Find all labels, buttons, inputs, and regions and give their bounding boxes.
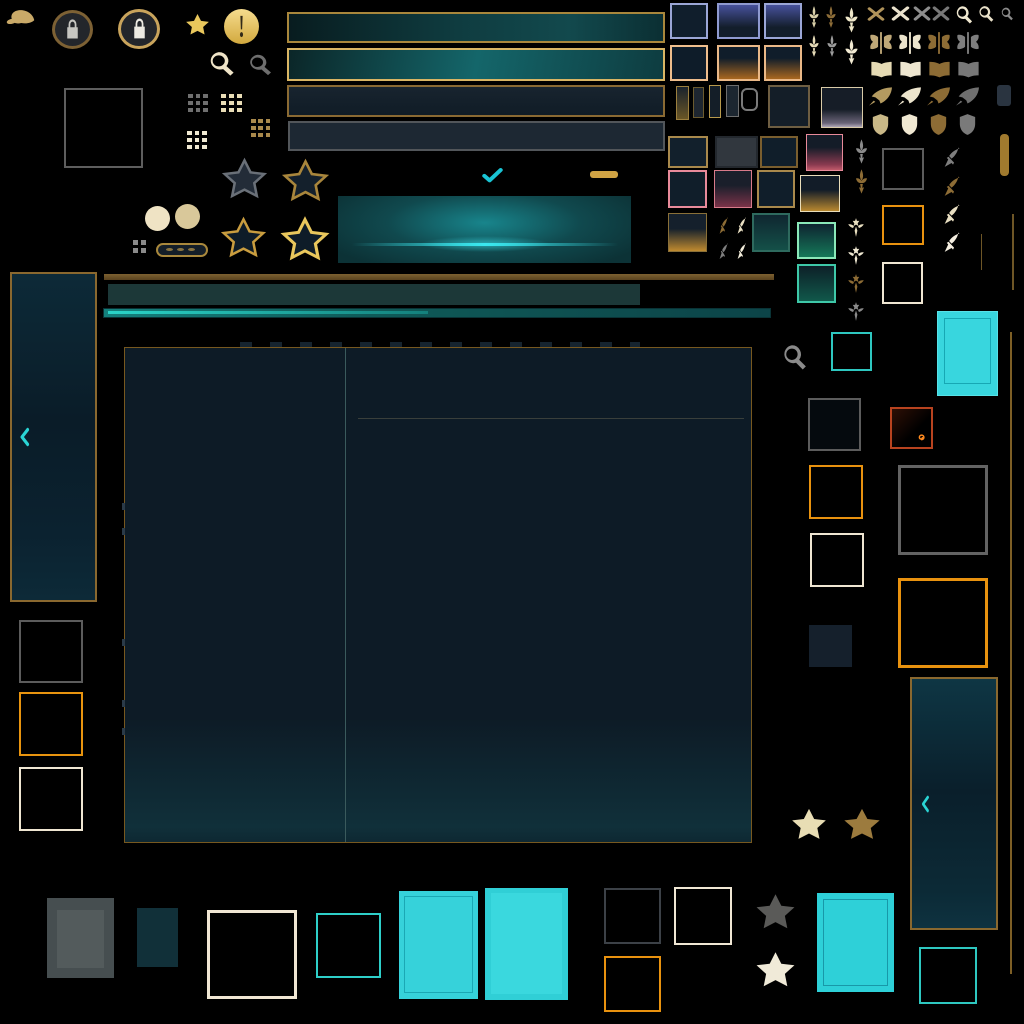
dot <box>203 101 208 105</box>
star-icon-outline-bright[interactable] <box>280 216 330 264</box>
close-icon-cream[interactable] <box>890 5 911 22</box>
dagger-icon-gray <box>940 146 965 173</box>
dot <box>229 94 234 98</box>
shield-icon-brown <box>927 112 950 137</box>
tile-cyan-filled-inner <box>944 318 991 384</box>
dot <box>251 119 256 123</box>
book-icon-brown <box>926 59 953 81</box>
book-icon-cream-a <box>868 59 895 81</box>
crest-icon-gray-col <box>852 137 871 166</box>
tile-frame-gold-b[interactable] <box>757 170 795 208</box>
slot-frame-lavender-c[interactable] <box>764 3 802 39</box>
frame-orange-small[interactable] <box>882 205 924 245</box>
dot <box>202 145 207 149</box>
slot-frame-fade-purple[interactable] <box>821 87 863 128</box>
dot <box>188 101 193 105</box>
dash-gold <box>590 171 618 178</box>
main-panel-rule <box>358 418 744 419</box>
check-icon[interactable] <box>481 165 504 185</box>
dot <box>187 131 192 135</box>
crest-icon-cream-large <box>841 5 862 35</box>
glow-button-streak <box>352 243 618 246</box>
circle-dot-cream[interactable] <box>145 206 170 231</box>
search-icon-cream-a[interactable] <box>953 4 975 26</box>
tile-frame-green[interactable] <box>797 264 836 303</box>
book-icon-gray <box>955 59 982 81</box>
sprite-atlas-canvas <box>0 0 1024 1024</box>
rule-brown <box>104 274 774 280</box>
frame-cyan-bottom-a[interactable] <box>316 913 381 978</box>
slot-rounded-frame[interactable] <box>741 88 758 111</box>
magnifier-icon-gray-large[interactable] <box>245 52 275 78</box>
frame-orange-mid[interactable] <box>809 465 863 519</box>
tile-gray-double-inner <box>57 910 104 968</box>
frame-cream-bottom-a[interactable] <box>207 910 297 999</box>
slot-narrow-gray-d[interactable] <box>726 85 739 117</box>
shield-icon-gray <box>956 112 979 137</box>
slot-narrow-gold-a[interactable] <box>676 86 689 120</box>
slider-pill-dots <box>166 248 199 253</box>
magnifier-icon-cream-large[interactable] <box>205 49 238 79</box>
frame-gray-small[interactable] <box>882 148 924 190</box>
button-bar-navy-gray[interactable] <box>288 121 665 151</box>
dot <box>258 126 263 130</box>
flame-swirl-icon <box>910 428 928 446</box>
bar-teal-highlight <box>108 311 428 314</box>
dagger-icon-brown-small <box>717 216 731 239</box>
dot <box>166 248 173 251</box>
panel-cyan-a-inner <box>404 896 473 993</box>
slot-frame-peach-c[interactable] <box>764 45 802 81</box>
dot <box>221 108 226 112</box>
shield-icon-tan <box>869 112 892 137</box>
dot <box>196 94 201 98</box>
frame-orange-bottom[interactable] <box>604 956 661 1012</box>
frame-orange-left[interactable] <box>19 692 83 756</box>
square-frame-gray-topleft[interactable] <box>64 88 143 168</box>
panel-notch-b <box>122 528 125 535</box>
crest-icon-cream <box>806 4 822 30</box>
circle-dot-tan[interactable] <box>175 204 200 229</box>
button-bar-teal-gold[interactable] <box>287 12 665 43</box>
grid-dots-gold[interactable] <box>251 119 273 140</box>
bow-icon-tan <box>866 85 895 108</box>
tile-navy-flat <box>809 625 852 667</box>
dot <box>266 126 271 130</box>
slot-pill-navy <box>997 85 1011 106</box>
tile-gold-gradient-b[interactable] <box>668 213 707 252</box>
dot <box>177 248 184 251</box>
slot-frame-peach-b[interactable] <box>717 45 760 81</box>
dagger-icon-white <box>940 231 965 258</box>
bee-icon-brown <box>845 271 867 296</box>
dot <box>188 248 195 251</box>
star-icon-outline-gold-a[interactable] <box>281 158 330 205</box>
dot <box>141 240 146 245</box>
tile-frame-mint[interactable] <box>797 222 836 259</box>
frame-cream-bottom-b[interactable] <box>674 887 732 945</box>
star-icon-small-gold[interactable] <box>184 12 211 38</box>
bee-icon-cream-b <box>845 243 867 268</box>
line-gold-right-edge <box>1010 332 1012 974</box>
dot <box>141 248 146 253</box>
glow-button[interactable] <box>338 196 631 263</box>
dot <box>133 240 138 245</box>
close-icon-gray[interactable] <box>912 5 932 22</box>
axe-icon-cream <box>896 30 924 56</box>
frame-gray-mid[interactable] <box>808 398 861 451</box>
tile-frame-gold-a[interactable] <box>668 136 708 168</box>
dagger-icon-gray-small <box>717 242 731 264</box>
grid-dots-cream[interactable] <box>221 94 245 115</box>
dot <box>237 94 242 98</box>
search-icon-gray-large[interactable] <box>779 342 810 373</box>
dot <box>133 248 138 253</box>
slot-frame-peach-a[interactable] <box>670 45 708 81</box>
panel-cyan-c-inner <box>823 899 888 986</box>
dot <box>221 101 226 105</box>
dot <box>203 108 208 112</box>
panel-notch-c <box>122 639 125 646</box>
slot-narrow-gold-b[interactable] <box>693 87 704 118</box>
tile-frame-teal[interactable] <box>752 213 790 252</box>
bow-icon-brown <box>924 85 953 108</box>
dot <box>187 145 192 149</box>
dot <box>229 101 234 105</box>
bee-icon-cream-a <box>845 215 867 240</box>
frame-cyan-small[interactable] <box>831 332 872 371</box>
dot <box>266 133 271 137</box>
frame-gray-large[interactable] <box>898 465 988 555</box>
dagger-icon-white-small <box>735 242 749 264</box>
frame-gray-left[interactable] <box>19 620 83 683</box>
frame-cyan-bottom-right[interactable] <box>919 947 977 1004</box>
panel-notch-d <box>122 700 125 707</box>
crest-icon-cream-2 <box>806 33 822 59</box>
crest-icon-brown-col <box>852 167 871 196</box>
panel-notch-e <box>122 728 125 735</box>
dot <box>196 101 201 105</box>
dot <box>195 138 200 142</box>
bow-icon-gray <box>953 85 982 108</box>
frame-cream-left[interactable] <box>19 767 83 831</box>
search-icon-gray-small[interactable] <box>999 6 1015 22</box>
bow-icon-cream <box>895 85 924 108</box>
book-icon-cream-b <box>897 59 924 81</box>
tile-gold-gradient-a[interactable] <box>800 175 840 212</box>
close-icon-dark-gray[interactable] <box>931 5 951 22</box>
tile-teal-dark <box>137 908 178 967</box>
button-bar-navy-bronze[interactable] <box>287 85 665 117</box>
dot <box>196 108 201 112</box>
dot <box>266 119 271 123</box>
dot <box>188 94 193 98</box>
shield-icon-cream <box>898 112 921 137</box>
dot <box>237 101 242 105</box>
dot <box>237 108 242 112</box>
star-icon-outline-gold-b[interactable] <box>220 216 267 261</box>
tile-gray-flat <box>715 136 758 168</box>
dot <box>251 133 256 137</box>
frame-orange-large[interactable] <box>898 578 988 668</box>
main-panel <box>124 347 752 843</box>
dot <box>258 119 263 123</box>
dagger-icon-brown <box>940 175 965 202</box>
dot <box>258 133 263 137</box>
tile-pink-gradient-b[interactable] <box>714 170 752 208</box>
lock-icon-white <box>129 15 150 43</box>
star-icon-filled-tan[interactable] <box>841 806 883 844</box>
main-panel-divider <box>345 348 346 842</box>
frame-dark-bottom[interactable] <box>604 888 661 944</box>
tile-pink-gradient-a[interactable] <box>806 134 843 171</box>
dot <box>229 108 234 112</box>
grid-dots-2x2[interactable] <box>133 240 149 256</box>
panel-cyan-b-inner <box>491 893 562 994</box>
tile-frame-brown[interactable] <box>760 136 798 168</box>
dot <box>188 108 193 112</box>
hat-icon <box>2 2 38 32</box>
dot <box>202 138 207 142</box>
exclamation-icon <box>233 13 250 40</box>
line-gold-thin-b <box>981 234 982 270</box>
slot-frame-lavender-a[interactable] <box>670 3 708 39</box>
star-icon-filled-gray[interactable] <box>753 891 798 934</box>
axe-icon-tan <box>867 30 895 56</box>
close-icon-tan[interactable] <box>866 6 886 22</box>
star-icon-outline-gray[interactable] <box>221 157 268 202</box>
dagger-icon-cream <box>940 203 965 230</box>
bee-icon-gray <box>845 299 867 324</box>
dot <box>187 138 192 142</box>
axe-icon-brown <box>925 30 953 56</box>
dot <box>251 126 256 130</box>
lock-icon-silver <box>62 16 83 43</box>
scroll-thumb-gold[interactable] <box>1000 134 1009 176</box>
dagger-icon-cream-small <box>735 216 749 239</box>
crest-icon-bronze <box>823 4 839 30</box>
crest-icon-cream-large-2 <box>841 37 862 67</box>
line-gold-thin-a <box>1012 214 1014 290</box>
axe-icon-gray <box>954 30 982 56</box>
star-icon-filled-cream-b[interactable] <box>753 949 798 992</box>
tile-frame-pink[interactable] <box>668 170 707 208</box>
dot <box>221 94 226 98</box>
dot <box>195 131 200 135</box>
grid-dots-gray[interactable] <box>188 94 211 115</box>
dot <box>203 94 208 98</box>
frame-cream-small[interactable] <box>882 262 923 304</box>
dot <box>195 145 200 149</box>
slot-frame-lavender-b[interactable] <box>717 3 760 39</box>
bar-dark-teal <box>108 284 640 305</box>
frame-cream-mid[interactable] <box>810 533 864 587</box>
slot-frame-brown-large[interactable] <box>768 85 810 128</box>
grid-dots-cream-2[interactable] <box>187 131 210 152</box>
chevron-left-icon-a[interactable] <box>17 426 34 448</box>
button-bar-teal-bright[interactable] <box>287 48 665 81</box>
search-icon-cream-b[interactable] <box>976 4 996 24</box>
panel-notch-a <box>122 503 125 510</box>
slot-narrow-gold-c[interactable] <box>709 85 721 118</box>
chevron-left-icon-b[interactable] <box>919 794 933 814</box>
dot <box>202 131 207 135</box>
star-icon-filled-cream-a[interactable] <box>789 806 829 844</box>
crest-icon-gray <box>824 33 840 59</box>
